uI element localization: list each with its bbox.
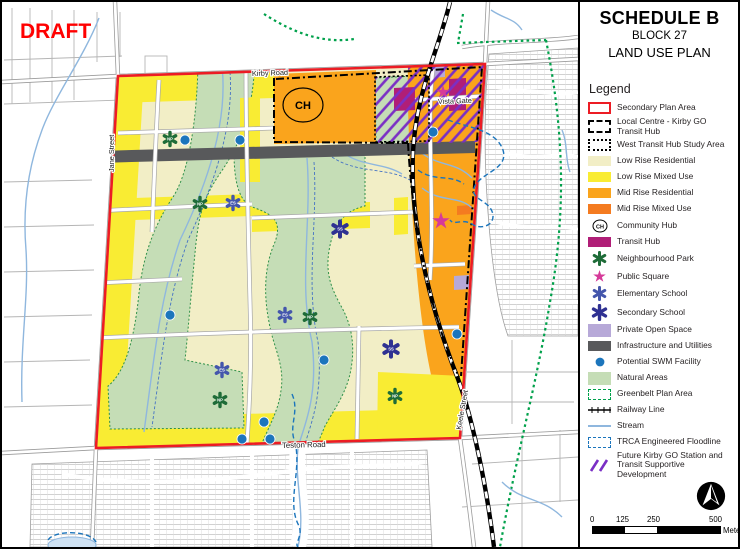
plan-subtitle: LAND USE PLAN <box>588 45 731 60</box>
legend-heading: Legend <box>589 82 731 96</box>
community-hub-icon: CH <box>588 219 611 233</box>
legend-item-potential-swm-facility: Potential SWM Facility <box>588 356 731 368</box>
greenbelt-swatch <box>588 389 611 400</box>
public-square-icon <box>588 269 611 284</box>
street-label-kirby-road: Kirby Road <box>252 68 288 78</box>
legend-item-low-rise-residential: Low Rise Residential <box>588 155 731 167</box>
legend-item-secondary-school: Secondary School <box>588 305 731 320</box>
legend-item-low-rise-mixed-use: Low Rise Mixed Use <box>588 171 731 183</box>
local-centre-swatch <box>588 120 611 133</box>
north-arrow-icon <box>695 480 727 512</box>
svg-text:NP: NP <box>167 137 173 142</box>
legend-item-public-square: Public Square <box>588 270 731 284</box>
low-rise-mixed-use-swatch <box>588 172 611 182</box>
legend-panel: SCHEDULE B BLOCK 27 LAND USE PLAN Legend… <box>578 2 738 547</box>
neighbourhood-park-icon <box>588 251 611 266</box>
study-area-swatch <box>588 139 611 151</box>
panel-footer: 0 125 250 500 Meters <box>588 480 731 542</box>
land-use-plan-sheet: NP NP NP NP NP ES ES ES SS SS <box>0 0 740 549</box>
legend-item-future-kirby-go: Future Kirby GO Station and Transit Supp… <box>588 452 731 478</box>
mixed-use-southeast <box>377 372 463 443</box>
legend-item-stream: Stream <box>588 420 731 432</box>
north-arrow <box>588 480 731 512</box>
scale-bar: 0 125 250 500 Meters <box>592 515 729 542</box>
legend-item-railway-line: Railway Line <box>588 404 731 416</box>
legend-item-greenbelt-plan-area: Greenbelt Plan Area <box>588 388 731 400</box>
legend-item-private-open-space: Private Open Space <box>588 324 731 336</box>
infrastructure-swatch <box>588 341 611 351</box>
legend-item-mid-rise-residential: Mid Rise Residential <box>588 187 731 199</box>
svg-text:SS: SS <box>388 347 394 352</box>
legend-item-community-hub: CH Community Hub <box>588 219 731 232</box>
schedule-title: SCHEDULE B <box>588 8 731 29</box>
map-canvas: NP NP NP NP NP ES ES ES SS SS <box>2 2 578 547</box>
legend-item-natural-areas: Natural Areas <box>588 372 731 384</box>
scale-unit-label: Meters <box>723 526 740 535</box>
svg-text:NP: NP <box>392 394 398 399</box>
legend-item-mid-rise-mixed-use: Mid Rise Mixed Use <box>588 203 731 215</box>
legend-item-local-centre: Local Centre - Kirby GO Transit Hub <box>588 118 731 135</box>
street-label-vista-gate: Vista Gate <box>438 96 472 106</box>
svg-text:CH: CH <box>295 100 311 112</box>
scale-tick-labels: 0 125 250 500 <box>592 515 729 525</box>
street-label-teston-road: Teston Road <box>282 440 326 450</box>
elementary-school-icon <box>588 286 611 301</box>
swm-facility-icon <box>588 356 611 368</box>
draft-watermark: DRAFT <box>20 20 91 43</box>
svg-text:NP: NP <box>217 398 223 403</box>
legend-item-trca-floodline: TRCA Engineered Floodline <box>588 436 731 448</box>
low-rise-residential-swatch <box>588 156 611 166</box>
legend-item-neighbourhood-park: Neighbourhood Park <box>588 252 731 266</box>
legend-item-transit-hub: Transit Hub <box>588 236 731 248</box>
future-go-hatch-icon <box>588 458 611 473</box>
stream-icon <box>588 422 611 430</box>
svg-text:ES: ES <box>219 368 225 373</box>
svg-text:NP: NP <box>307 315 313 320</box>
private-open-space-swatch <box>588 324 611 337</box>
legend-item-secondary-plan-area: Secondary Plan Area <box>588 102 731 114</box>
svg-text:ES: ES <box>230 201 236 206</box>
street-label-jane-street: Jane Street <box>107 135 116 172</box>
trca-floodline-swatch <box>588 437 611 448</box>
mid-rise-residential-swatch <box>588 188 611 198</box>
svg-text:SS: SS <box>337 227 343 232</box>
svg-text:ES: ES <box>282 313 288 318</box>
scale-bar-segments <box>592 526 721 534</box>
legend-item-elementary-school: Elementary School <box>588 287 731 301</box>
secondary-school-icon <box>588 304 611 321</box>
legend-item-west-transit-hub-study-area: West Transit Hub Study Area <box>588 139 731 151</box>
block-subtitle: BLOCK 27 <box>588 30 731 42</box>
railway-line-icon <box>588 405 611 415</box>
secondary-plan-area-swatch <box>588 102 611 114</box>
natural-areas-swatch <box>588 372 611 385</box>
map-title-block: SCHEDULE B BLOCK 27 LAND USE PLAN <box>588 8 731 60</box>
transit-hub-swatch <box>588 237 611 247</box>
mid-rise-mixed-use-swatch <box>588 204 611 214</box>
svg-text:NP: NP <box>197 202 203 207</box>
svg-text:CH: CH <box>596 224 604 230</box>
land-use-map: NP NP NP NP NP ES ES ES SS SS <box>2 2 578 547</box>
legend-item-infrastructure-utilities: Infrastructure and Utilities <box>588 340 731 352</box>
